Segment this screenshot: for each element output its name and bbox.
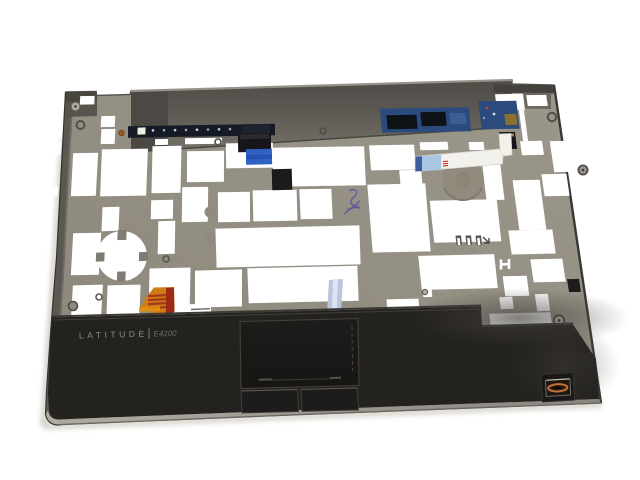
svg-text:E4200: E4200 — [153, 329, 177, 339]
svg-text:LATITUDE: LATITUDE — [79, 329, 148, 341]
